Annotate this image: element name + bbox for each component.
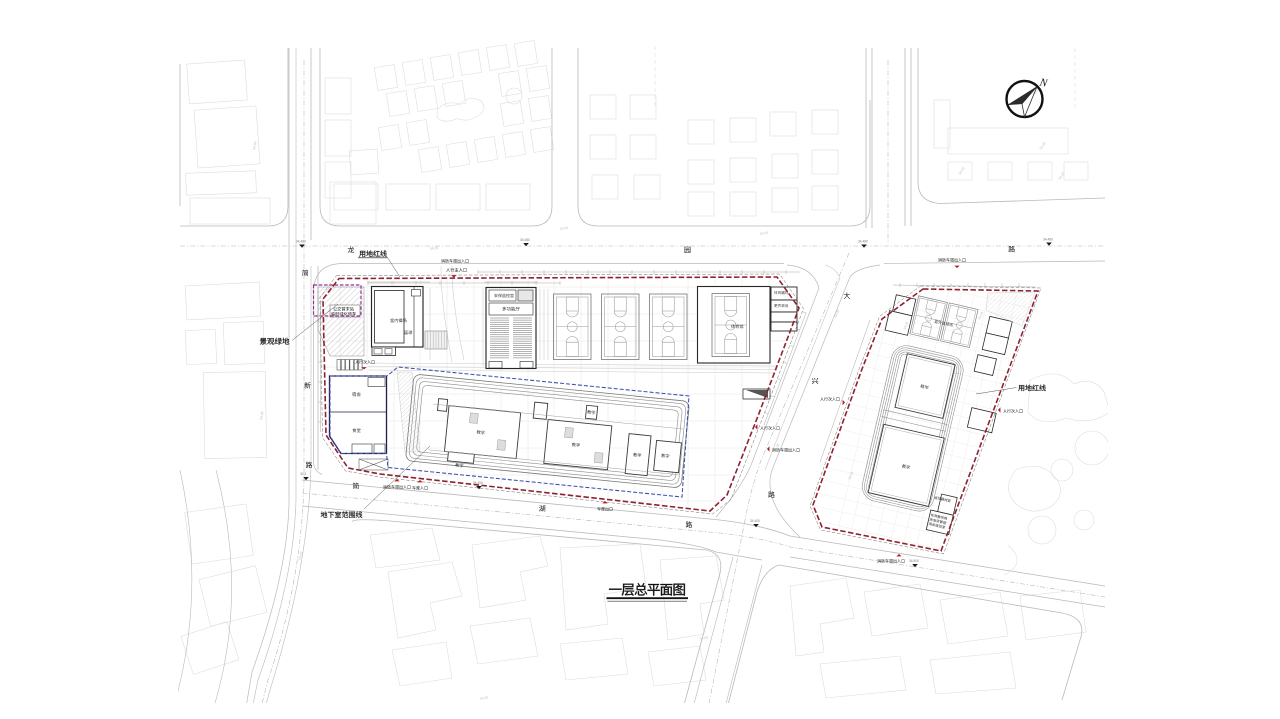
svg-text:34.500: 34.500 (909, 559, 919, 563)
svg-text:34.4: 34.4 (300, 472, 306, 476)
svg-text:34.480: 34.480 (1043, 238, 1053, 242)
svg-text:34.400: 34.400 (473, 481, 483, 485)
svg-text:34.480: 34.480 (520, 238, 530, 242)
svg-text:34.480: 34.480 (858, 240, 868, 244)
svg-text:34.400: 34.400 (750, 519, 760, 523)
svg-text:34.480: 34.480 (296, 240, 306, 244)
